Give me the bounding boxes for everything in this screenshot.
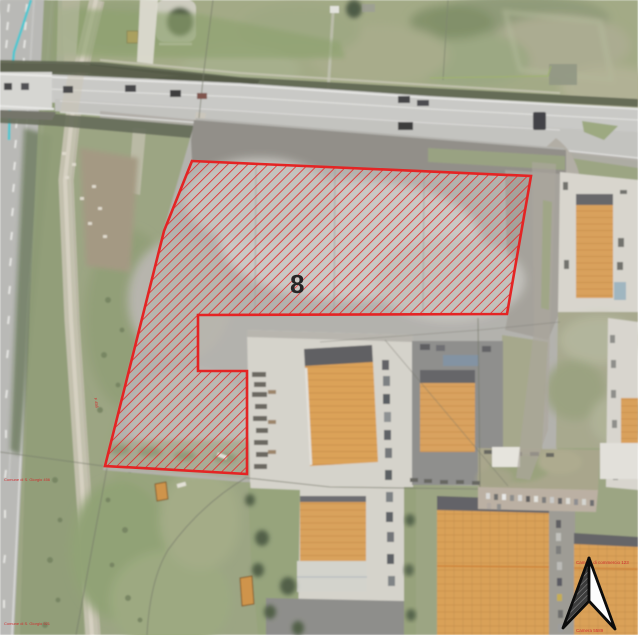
svg-text:Camera di commercio 123: Camera di commercio 123 — [576, 560, 629, 565]
svg-text:Camera 5589: Camera 5589 — [576, 628, 604, 633]
svg-text:8: 8 — [290, 269, 304, 299]
svg-text:Comune di S. Giorgio 456: Comune di S. Giorgio 456 — [4, 477, 51, 482]
svg-text:Comune di S. Giorgio 921: Comune di S. Giorgio 921 — [4, 621, 51, 626]
